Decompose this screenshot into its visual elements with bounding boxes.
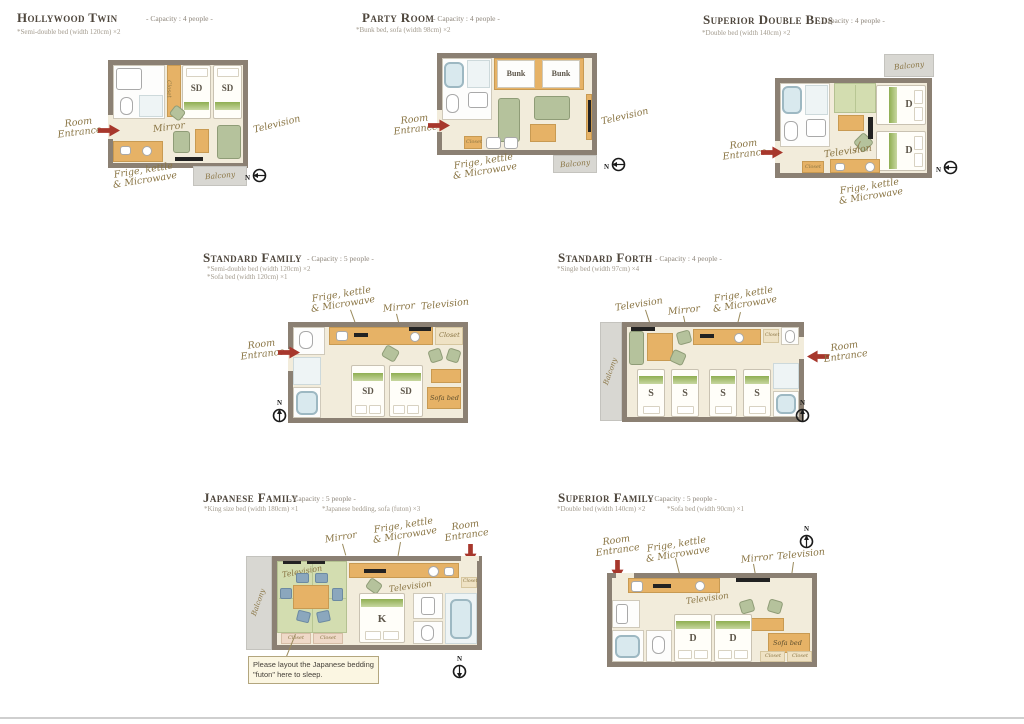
- kettle: [835, 163, 845, 171]
- bed-semi-double: SD: [182, 65, 211, 119]
- sink: [695, 581, 705, 591]
- floorplan-standard-family: Closet SD SD Sofa bed: [288, 322, 468, 423]
- bed-letter: D: [715, 633, 751, 644]
- room-entrance-label: Room Entrance: [56, 115, 102, 140]
- balcony-label: Balcony: [205, 171, 236, 182]
- toilet: [421, 625, 434, 641]
- kitchen-counter: [830, 159, 880, 173]
- bed-blanket-stripe: [361, 599, 403, 607]
- kitchen-counter: [628, 578, 720, 593]
- bed-blanket-stripe: [676, 621, 710, 629]
- toilet: [652, 636, 665, 654]
- mirror-label: Mirror: [741, 552, 774, 565]
- compass-n-label: N: [936, 167, 941, 174]
- balcony: Balcony: [246, 556, 272, 650]
- pillow: [718, 650, 732, 659]
- chair: [427, 347, 443, 363]
- closet-label: Closet: [765, 654, 781, 659]
- bed-king: K: [359, 593, 405, 643]
- capacity-text: - Capacity : 4 people -: [433, 14, 500, 23]
- tv-screen: [409, 327, 431, 331]
- bed-semi-double: SD: [351, 365, 385, 417]
- sofa: [217, 125, 241, 159]
- toilet: [446, 94, 459, 113]
- pillow: [749, 406, 766, 414]
- bed-single: S: [743, 369, 771, 417]
- chair: [676, 329, 693, 345]
- closet: Closet: [464, 136, 482, 149]
- bathtub: [444, 62, 464, 88]
- shower-room: [293, 357, 321, 385]
- sink: [734, 333, 744, 343]
- bathtub: [116, 68, 142, 90]
- compass: N: [799, 526, 814, 554]
- side-table: [195, 129, 209, 153]
- room-block-hollywood-twin: Hollywood Twin - Capacity : 4 people - *…: [15, 8, 305, 218]
- bed-single: S: [671, 369, 699, 417]
- bed-blanket-stripe: [391, 373, 421, 381]
- bathtub: [782, 86, 802, 114]
- bed-note: *Japanese bedding, sofa (futon) ×3: [322, 505, 420, 513]
- toilet: [785, 330, 795, 343]
- balcony-label: Balcony: [560, 159, 591, 170]
- kettle: [354, 333, 368, 337]
- compass-icon: [943, 160, 958, 180]
- pillow: [734, 650, 748, 659]
- sink: [142, 146, 152, 156]
- bed-note: *Single bed (width 97cm) ×4: [557, 265, 639, 273]
- bed-letter: SD: [352, 386, 384, 396]
- pillow: [383, 631, 399, 640]
- bed-letter: SD: [390, 386, 422, 396]
- futon-note-line2: "futon" here to sleep.: [253, 670, 374, 680]
- bathtub: [296, 391, 318, 415]
- pillow: [393, 405, 405, 414]
- pointer-line: [398, 542, 401, 556]
- washbasin: [421, 597, 435, 615]
- bed-blanket-stripe: [673, 376, 697, 384]
- pillow: [914, 153, 923, 167]
- page-title: Party Room: [362, 10, 434, 26]
- tv-screen: [868, 117, 873, 139]
- television-label: Television: [600, 107, 649, 128]
- tv-screen: [588, 100, 591, 132]
- room-block-standard-family: Standard Family - Capacity : 5 people - …: [200, 248, 500, 433]
- sofa-bed: Sofa bed: [427, 387, 461, 409]
- pillow: [355, 405, 367, 414]
- compass-icon: [611, 157, 626, 177]
- room-entrance-label: Room Entrance: [594, 533, 641, 559]
- television-label: Television: [824, 144, 873, 161]
- closet: Closet: [461, 577, 477, 588]
- bunk-bed: Bunk: [542, 60, 580, 88]
- frige-label: Frige, kettle & Microwave: [711, 285, 778, 315]
- bed-semi-double: SD: [389, 365, 423, 417]
- floorplan-hollywood-twin: Closet SD SD Mirror: [108, 60, 248, 168]
- closet: Closet: [760, 651, 785, 662]
- bed-letter: S: [638, 388, 664, 399]
- sofa-bed-label: Sofa bed: [430, 395, 459, 402]
- microwave: [336, 331, 348, 341]
- bed-note: *Sofa bed (width 90cm) ×1: [667, 505, 744, 513]
- bed-blanket-stripe: [639, 376, 663, 384]
- closet-label: Closet: [792, 654, 808, 659]
- compass: N: [936, 160, 958, 180]
- wardrobe: [498, 98, 520, 142]
- rug: [834, 83, 876, 113]
- compass: N: [795, 400, 810, 428]
- sink: [865, 162, 875, 172]
- room-entrance-label: Room Entrance: [721, 137, 767, 162]
- futon-note-line1: Please layout the Japanese bedding: [253, 660, 374, 670]
- bed-double: D: [876, 131, 926, 171]
- floorplan-sheet: { "labels": { "room": "Room", "entrance"…: [0, 0, 1024, 724]
- bathtub: [776, 394, 796, 414]
- bed-note: *Semi-double bed (width 120cm) ×2: [207, 265, 311, 273]
- page-title: Japanese Family: [203, 490, 298, 506]
- bed-blanket-stripe: [711, 376, 735, 384]
- frige-label: Frige, kettle & Microwave: [644, 535, 711, 565]
- bed-blanket-stripe: [353, 373, 383, 381]
- sofa: [629, 331, 644, 365]
- bed-single: S: [637, 369, 665, 417]
- compass: N: [245, 168, 267, 188]
- room-entrance-label: Room Entrance: [239, 337, 285, 362]
- toilet: [299, 331, 313, 349]
- toilet: [784, 121, 798, 141]
- chair: [669, 349, 687, 367]
- bed-blanket-stripe: [745, 376, 769, 384]
- bed-single: S: [709, 369, 737, 417]
- sink: [410, 332, 420, 342]
- pillow: [678, 650, 692, 659]
- capacity-text: - Capacity : 5 people -: [289, 494, 356, 503]
- television-label: Television: [252, 114, 301, 135]
- chair: [381, 344, 400, 363]
- balcony: Balcony: [553, 155, 597, 173]
- door-gap: [461, 556, 479, 561]
- frige-label: Frige, kettle & Microwave: [309, 285, 376, 315]
- balcony-label: Balcony: [603, 357, 620, 386]
- room-block-superior-double: Superior Double Beds - Capacity : 4 peop…: [700, 10, 1000, 225]
- pointer-line: [342, 544, 346, 556]
- balcony: Balcony: [600, 322, 622, 421]
- bed-blanket-stripe: [215, 102, 240, 110]
- tv-screen: [631, 327, 655, 331]
- bed-note: *King size bed (width 180cm) ×1: [204, 505, 298, 513]
- pillow: [694, 650, 708, 659]
- balcony-label: Balcony: [894, 60, 925, 71]
- washbasin: [806, 119, 826, 137]
- closet-label: Closet: [466, 140, 482, 145]
- mirror-label: Mirror: [383, 301, 416, 314]
- page-title: Superior Family: [558, 490, 654, 506]
- bed-double: D: [714, 614, 752, 662]
- futon-note: Please layout the Japanese bedding "futo…: [248, 656, 379, 684]
- floorplan-superior-double: D D Television Closet: [775, 78, 932, 178]
- closet-label: Closet: [320, 636, 336, 641]
- closet-label: Closet: [765, 334, 779, 339]
- bed-double: D: [876, 85, 926, 125]
- shower-room: [467, 60, 490, 88]
- compass: N: [604, 157, 626, 177]
- table: [647, 333, 673, 361]
- room-block-superior-family: Superior Family - Capacity : 5 people - …: [555, 488, 875, 693]
- closet: Closet: [435, 327, 463, 345]
- chair: [296, 573, 309, 583]
- capacity-text: - Capacity : 4 people -: [818, 16, 885, 25]
- washbasin: [468, 92, 488, 108]
- table: [431, 369, 461, 383]
- closet-label: Closet: [439, 332, 460, 339]
- capacity-text: - Capacity : 4 people -: [655, 254, 722, 263]
- kitchen-counter: [349, 563, 459, 578]
- floorplan-japanese-family: Television Closet Closet Television K: [272, 556, 482, 650]
- floorplan-standard-forth: Closet S S S S: [622, 322, 804, 422]
- bed-letter: SD: [214, 83, 241, 93]
- bed-blanket-stripe: [716, 621, 750, 629]
- bed-letter: D: [885, 99, 933, 110]
- bed-letter: SD: [183, 83, 210, 93]
- compass-icon: [799, 534, 814, 554]
- chair: [766, 598, 783, 614]
- pillow: [643, 406, 660, 414]
- kitchen-counter: [113, 141, 163, 162]
- pillow: [369, 405, 381, 414]
- bed-letter: K: [360, 613, 404, 625]
- closet-label: Closet: [805, 165, 821, 170]
- compass-n-label: N: [604, 164, 609, 171]
- pillow: [217, 68, 239, 77]
- room-block-japanese-family: Japanese Family - Capacity : 5 people - …: [200, 488, 500, 693]
- compass: N: [272, 400, 287, 428]
- closet-label: Closet: [288, 636, 304, 641]
- television-label: Television: [615, 296, 664, 313]
- washbasin: [616, 604, 628, 624]
- closet-label: Closet: [463, 580, 477, 585]
- low-table: [530, 124, 556, 142]
- bed-letter: D: [675, 633, 711, 644]
- compass-n-label: N: [457, 656, 462, 663]
- kettle: [364, 569, 386, 573]
- pillow: [407, 405, 419, 414]
- bath-floor-tile: [139, 95, 163, 117]
- page-title: Hollywood Twin: [17, 10, 118, 26]
- page-title: Standard Forth: [558, 250, 653, 266]
- kettle: [700, 334, 714, 338]
- sofa-bed-label: Sofa bed: [773, 640, 802, 647]
- compass-icon: [452, 664, 467, 684]
- mini-fridge: [486, 137, 501, 149]
- pillow: [914, 90, 923, 104]
- capacity-text: - Capacity : 5 people -: [307, 254, 374, 263]
- bathtub: [450, 599, 472, 639]
- page-title: Standard Family: [203, 250, 302, 266]
- frige-label: Frige, kettle & Microwave: [837, 177, 904, 207]
- frige-label: Frige, kettle & Microwave: [371, 516, 438, 546]
- shower-room: [805, 85, 828, 115]
- bed-double: D: [674, 614, 712, 662]
- pillow: [715, 406, 732, 414]
- closet: Closet: [802, 161, 824, 173]
- pillow: [914, 107, 923, 121]
- kettle: [653, 584, 671, 588]
- mini-fridge: [444, 567, 454, 576]
- sofa: [534, 96, 570, 120]
- floorplan-party-room: Bunk Bunk Closet: [437, 53, 597, 155]
- dining-table: [293, 585, 329, 609]
- kitchen-counter: [693, 329, 761, 345]
- pillow: [186, 68, 208, 77]
- compass-icon: [252, 168, 267, 188]
- balcony-label: Balcony: [251, 589, 268, 618]
- balcony: Balcony: [193, 166, 247, 186]
- bed-note: *Double bed (width 140cm) ×2: [557, 505, 645, 513]
- stove: [120, 146, 131, 155]
- toilet: [120, 97, 133, 115]
- kitchen-unit: [504, 137, 518, 149]
- compass: N: [452, 656, 467, 684]
- bed-blanket-stripe: [184, 102, 209, 110]
- closet: Closet: [787, 651, 812, 662]
- bed-letter: S: [744, 388, 770, 399]
- pillow: [914, 136, 923, 150]
- chair: [315, 573, 328, 583]
- television-label: Television: [421, 298, 470, 313]
- compass-icon: [272, 408, 287, 428]
- room-block-standard-forth: Standard Forth - Capacity : 4 people - *…: [555, 248, 870, 433]
- bed-letter: Bunk: [543, 69, 579, 78]
- closet: Closet: [313, 633, 343, 644]
- pillow: [677, 406, 694, 414]
- page-bottom-divider: [0, 717, 1024, 719]
- tv-screen: [736, 578, 770, 582]
- bed-letter: S: [710, 388, 736, 399]
- compass-n-label: N: [245, 175, 250, 182]
- compass-icon: [795, 408, 810, 428]
- floorplan-superior-family: Television Sofa bed D D Closet Closet: [607, 573, 817, 667]
- rug-line: [855, 85, 856, 112]
- television-label: Television: [686, 592, 730, 607]
- chair: [445, 347, 461, 363]
- frige-label: Frige, kettle & Microwave: [451, 152, 518, 182]
- compass-n-label: N: [804, 526, 809, 533]
- balcony: Balcony: [884, 54, 934, 77]
- chair: [332, 588, 343, 601]
- room-entrance-label: Room Entrance: [443, 518, 490, 544]
- bed-note: *Semi-double bed (width 120cm) ×2: [17, 28, 121, 36]
- closet-label: Closet: [165, 80, 171, 98]
- chair: [280, 588, 292, 599]
- bed-note: *Double bed (width 140cm) ×2: [702, 29, 790, 37]
- sofa-bed: Sofa bed: [768, 633, 810, 653]
- washroom: [773, 363, 799, 389]
- capacity-text: - Capacity : 4 people -: [146, 14, 213, 23]
- chair: [738, 598, 755, 614]
- compass-n-label: N: [277, 400, 282, 407]
- closet: Closet: [763, 329, 779, 343]
- room-entrance-label: Room Entrance: [822, 339, 869, 365]
- tv-screen: [283, 561, 301, 564]
- low-table: [838, 115, 864, 131]
- sink: [428, 566, 439, 577]
- closet: Closet: [281, 633, 311, 644]
- bed-letter: S: [672, 388, 698, 399]
- compass-n-label: N: [800, 400, 805, 407]
- door-gap: [799, 337, 804, 359]
- bunk-bed: Bunk: [497, 60, 535, 88]
- bed-note: *Bunk bed, sofa (width 98cm) ×2: [356, 26, 451, 34]
- bed-note: *Sofa bed (width 120cm) ×1: [207, 273, 288, 281]
- tv-screen: [307, 561, 325, 564]
- bed-letter: D: [885, 145, 933, 156]
- armchair: [173, 131, 190, 153]
- mini-fridge: [631, 581, 643, 592]
- room-block-party-room: Party Room - Capacity : 4 people - *Bunk…: [355, 5, 645, 215]
- capacity-text: - Capacity : 5 people -: [650, 494, 717, 503]
- bathtub: [615, 635, 640, 658]
- page-title: Superior Double Beds: [703, 12, 833, 28]
- tv-screen: [175, 157, 203, 161]
- bed-semi-double: SD: [213, 65, 242, 119]
- pillow: [365, 631, 381, 640]
- bed-letter: Bunk: [498, 69, 534, 78]
